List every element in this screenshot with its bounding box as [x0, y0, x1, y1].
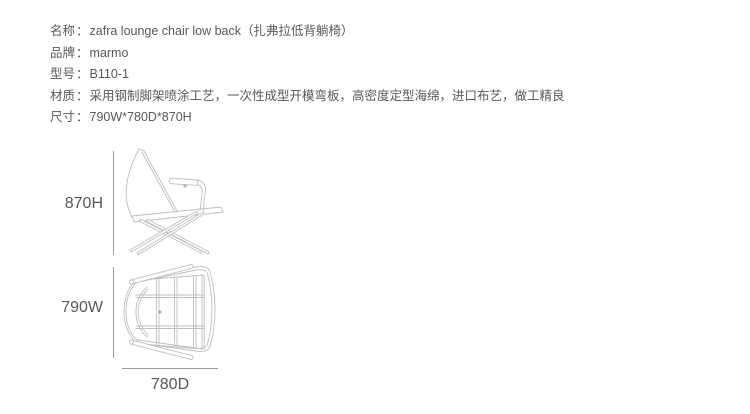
spec-row-name: 名称：zafra lounge chair low back（扎弗拉低背躺椅）: [50, 21, 565, 43]
product-info: 名称：zafra lounge chair low back（扎弗拉低背躺椅） …: [50, 21, 565, 129]
spec-value: marmo: [90, 46, 129, 60]
spec-row-size: 尺寸：790W*780D*870H: [50, 107, 565, 129]
spec-colon: ：: [75, 67, 90, 81]
seat-plank: [132, 207, 223, 222]
depth-dim-line: [122, 368, 218, 369]
spec-label: 材质: [50, 89, 75, 103]
spec-value: zafra lounge chair low back（扎弗拉低背躺椅）: [90, 24, 354, 38]
product-spec-page: 名称：zafra lounge chair low back（扎弗拉低背躺椅） …: [0, 0, 750, 414]
spec-value: 采用钢制脚架喷涂工艺，一次性成型开模弯板，高密度定型海绵，进口布艺，做工精良: [90, 89, 565, 103]
width-dim-line: [113, 267, 114, 358]
spec-value: 790W*780D*870H: [90, 110, 192, 124]
armrest-right-cap: [130, 340, 134, 344]
chair-side-view-drawing: [113, 145, 243, 260]
spec-colon: ：: [75, 89, 90, 103]
backrest-top-edge: [139, 149, 144, 151]
armrest-left: [131, 264, 194, 284]
chair-top-view-drawing: [116, 261, 220, 363]
seat-frame-boundary: [140, 275, 204, 349]
armrest-pad: [169, 178, 198, 186]
spec-row-material: 材质：采用钢制脚架喷涂工艺，一次性成型开模弯板，高密度定型海绵，进口布艺，做工精…: [50, 86, 565, 108]
spec-colon: ：: [75, 24, 90, 38]
spec-label: 名称: [50, 24, 75, 38]
spec-label: 型号: [50, 67, 75, 81]
height-dim-label: 870H: [55, 196, 103, 212]
armrest-support-inner: [196, 184, 202, 211]
spec-colon: ：: [75, 110, 90, 124]
spec-label: 品牌: [50, 46, 75, 60]
width-dim-label: 790W: [55, 300, 103, 316]
spec-value: B110-1: [90, 67, 129, 81]
seat-slats-vertical: [157, 276, 197, 348]
depth-dim-label: 780D: [140, 377, 200, 393]
backrest-back-edge: [126, 149, 139, 217]
spec-label: 尺寸: [50, 110, 75, 124]
armrest-left-cap: [130, 280, 134, 284]
shell-inner-edge: [138, 270, 212, 349]
spec-colon: ：: [75, 46, 90, 60]
spec-row-model: 型号：B110-1: [50, 64, 565, 86]
spec-row-brand: 品牌：marmo: [50, 43, 565, 65]
